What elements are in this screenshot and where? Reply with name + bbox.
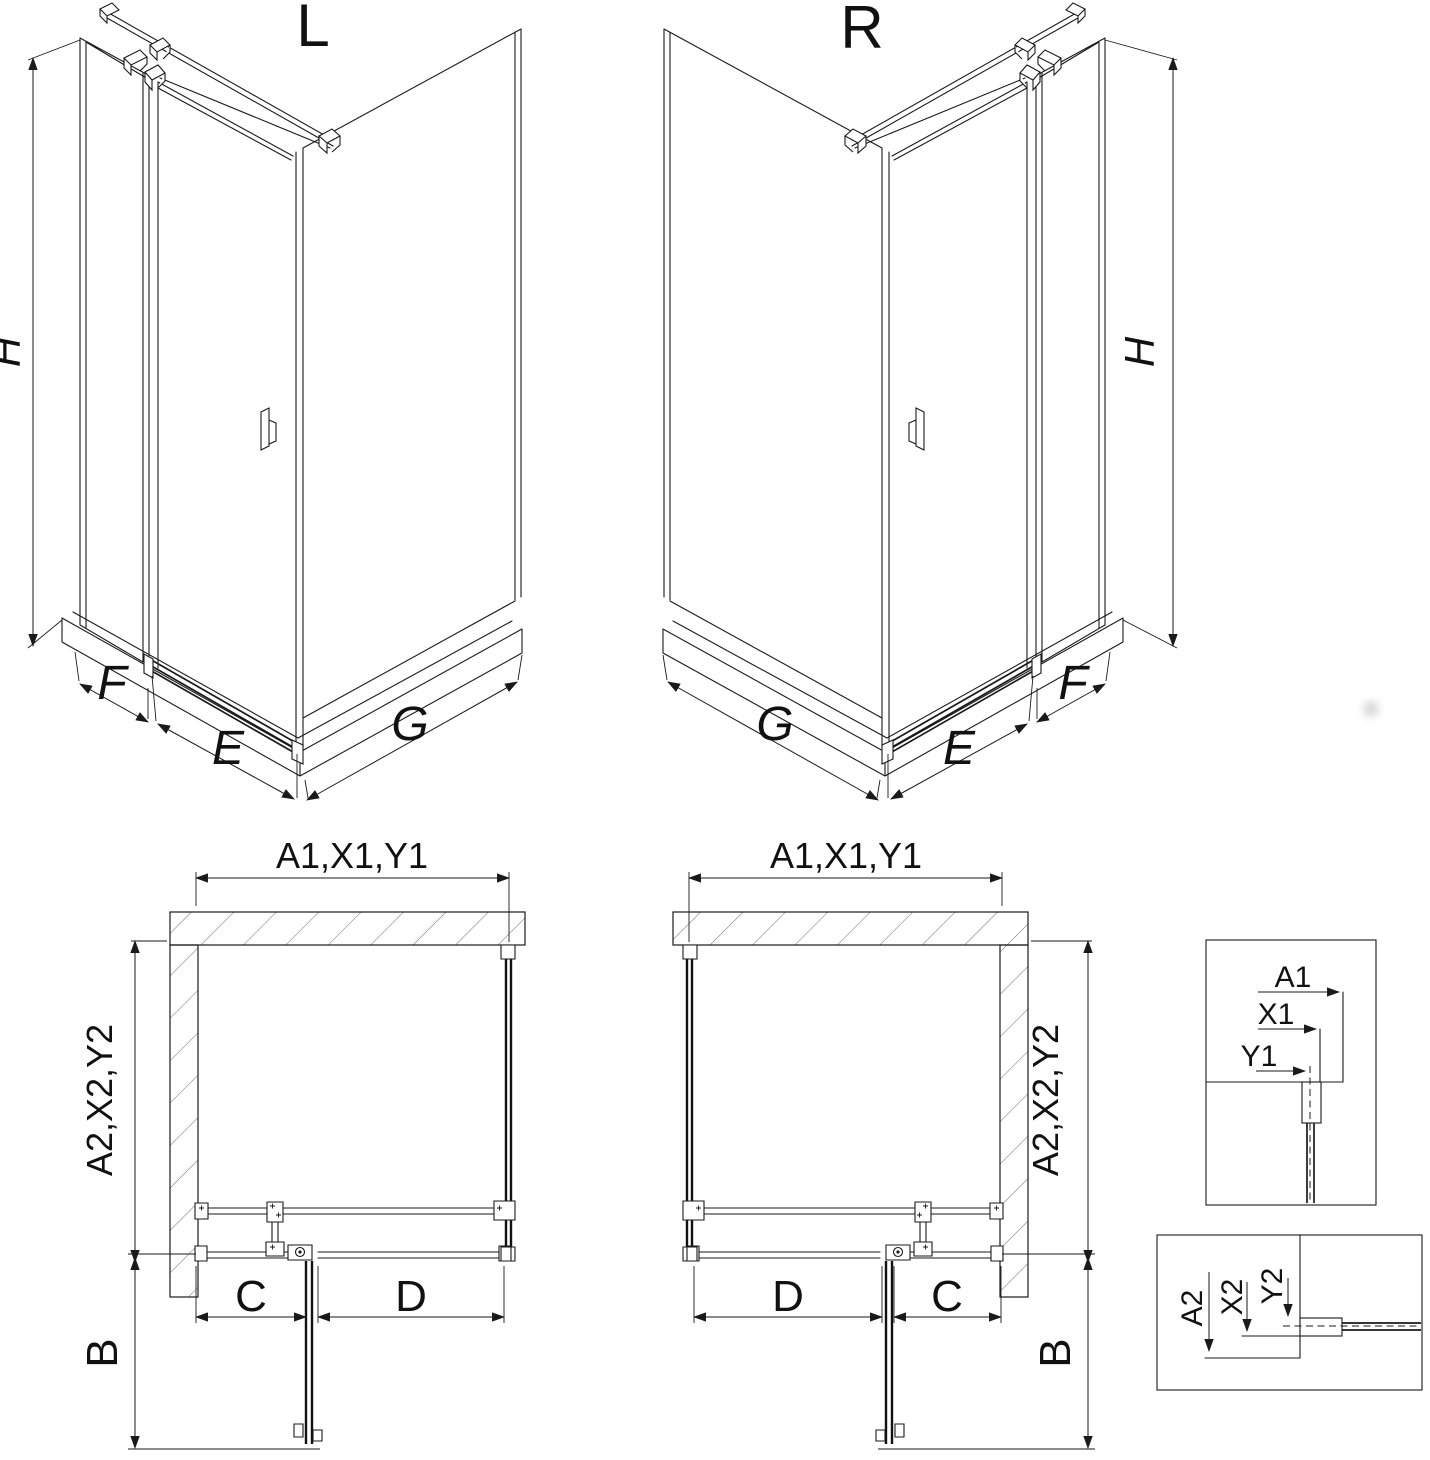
door-hinge-pin <box>896 1250 899 1253</box>
stabilizer-bar-plan <box>694 1208 1000 1258</box>
wall-hatch-top <box>170 912 525 945</box>
detail-label-x2: X2 <box>1216 1279 1249 1316</box>
stabilizer-bar-plan <box>198 1208 504 1258</box>
watermark-dot <box>1363 701 1379 717</box>
dim-label-d-left: D <box>395 1272 427 1321</box>
dim-label-a2group-left: A2,X2,Y2 <box>79 1024 120 1176</box>
technical-drawing-page: L R H H F E G G E F A1,X1,Y1 A1,X1,Y1 A2… <box>0 0 1430 1460</box>
isometric-view-right <box>663 3 1177 800</box>
detail-label-x1: X1 <box>1258 998 1295 1031</box>
dim-label-g-right: G <box>756 698 793 751</box>
dim-label-e-right: E <box>943 722 976 775</box>
detail-label-a2: A2 <box>1176 1290 1209 1327</box>
door-handle <box>261 408 276 450</box>
dim-label-d-right: D <box>772 1272 804 1321</box>
detail-label-y1: Y1 <box>1241 1040 1278 1073</box>
open-door-plan <box>886 1261 892 1444</box>
screw-marks <box>696 1204 999 1250</box>
variant-label-left: L <box>296 0 329 59</box>
dim-label-e-left: E <box>212 722 245 775</box>
dim-label-height-left: H <box>0 336 29 367</box>
dim-label-g-left: G <box>391 698 428 751</box>
top-support-bar <box>852 12 1078 148</box>
wall-profile-section <box>1300 1318 1342 1336</box>
door-handle <box>909 408 924 450</box>
dim-label-a1group-right: A1,X1,Y1 <box>770 835 922 876</box>
detail-label-y2: Y2 <box>1256 1268 1289 1305</box>
connector-blocks-plan <box>683 945 1003 1441</box>
dim-label-b-left: B <box>78 1338 127 1367</box>
screw-marks <box>199 1204 502 1250</box>
dim-label-c-left: C <box>235 1272 267 1321</box>
open-door-plan <box>306 1261 312 1444</box>
connector-blocks-plan <box>195 945 515 1441</box>
variant-label-right: R <box>840 0 883 61</box>
wall-hatch-side <box>1000 945 1028 1297</box>
dim-label-f-right: F <box>1058 657 1090 710</box>
plan-view-left <box>128 872 525 1449</box>
dim-label-f-left: F <box>97 657 129 710</box>
dim-label-c-right: C <box>931 1272 963 1321</box>
door-hinge-pin <box>298 1250 301 1253</box>
wall-profile-section <box>1302 1082 1321 1123</box>
dim-label-a2group-right: A2,X2,Y2 <box>1025 1024 1066 1176</box>
glass-panels-outline <box>80 29 521 752</box>
wall-hatch-top <box>673 912 1028 945</box>
glass-panels-outline <box>664 29 1105 752</box>
shower-enclosure-technical-drawing: L R H H F E G G E F A1,X1,Y1 A1,X1,Y1 A2… <box>0 0 1430 1460</box>
dim-label-height-right: H <box>1116 336 1163 367</box>
detail-label-a1: A1 <box>1275 961 1312 994</box>
dim-label-b-right: B <box>1031 1338 1080 1367</box>
wall-hatch-side <box>170 945 198 1297</box>
dim-label-a1group-left: A1,X1,Y1 <box>276 835 428 876</box>
